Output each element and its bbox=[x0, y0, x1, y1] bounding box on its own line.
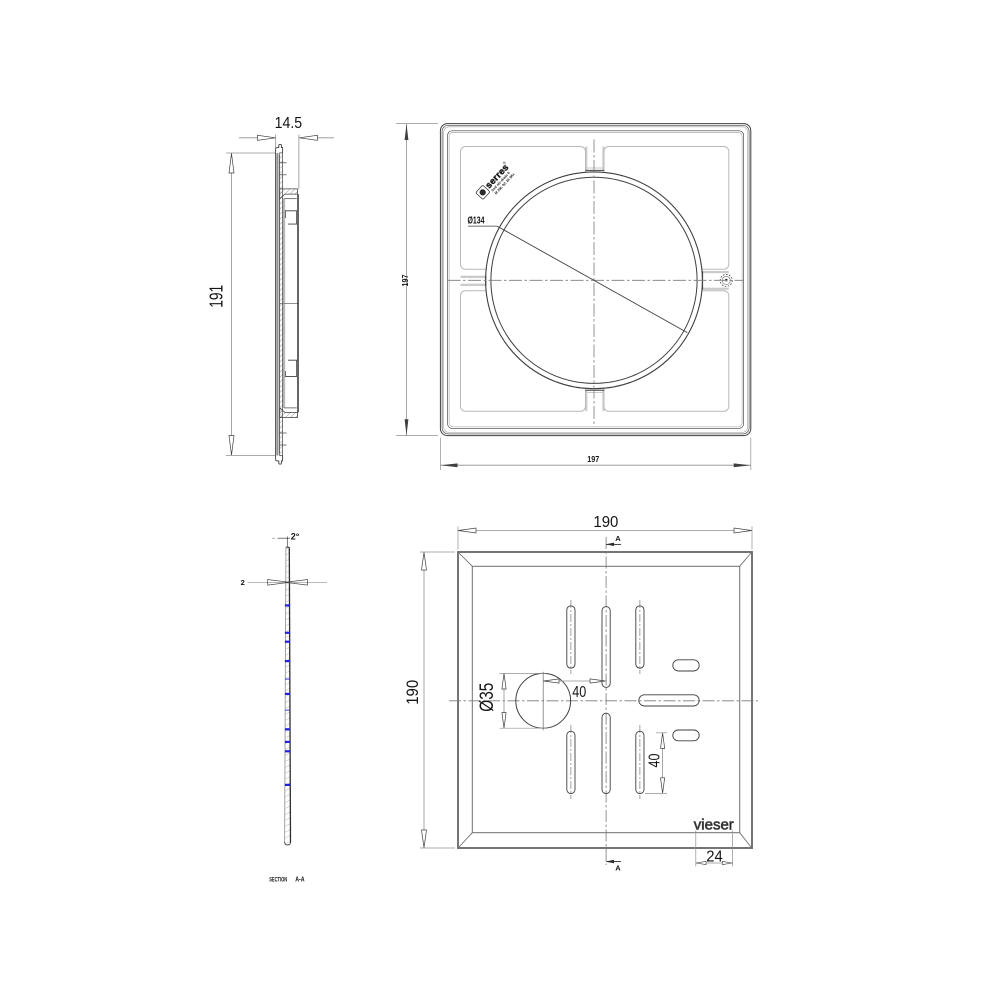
svg-text:Ø134: Ø134 bbox=[468, 215, 485, 227]
svg-text:14.5: 14.5 bbox=[275, 115, 303, 132]
svg-text:190: 190 bbox=[593, 514, 618, 531]
svg-text:40: 40 bbox=[647, 753, 664, 767]
svg-text:24: 24 bbox=[706, 849, 723, 866]
svg-text:A-A: A-A bbox=[295, 877, 304, 884]
svg-text:191: 191 bbox=[206, 285, 227, 308]
svg-text:2°: 2° bbox=[291, 531, 300, 541]
svg-text:197: 197 bbox=[587, 455, 599, 464]
svg-text:40: 40 bbox=[572, 684, 586, 701]
svg-text:2: 2 bbox=[241, 578, 245, 587]
svg-text:190: 190 bbox=[404, 680, 422, 705]
svg-text:A: A bbox=[615, 864, 621, 873]
svg-text:SECTION: SECTION bbox=[269, 877, 287, 884]
svg-text:Ø35: Ø35 bbox=[477, 683, 498, 712]
svg-text:A: A bbox=[615, 534, 621, 543]
svg-text:vieser: vieser bbox=[694, 817, 734, 834]
svg-text:197: 197 bbox=[401, 274, 410, 286]
